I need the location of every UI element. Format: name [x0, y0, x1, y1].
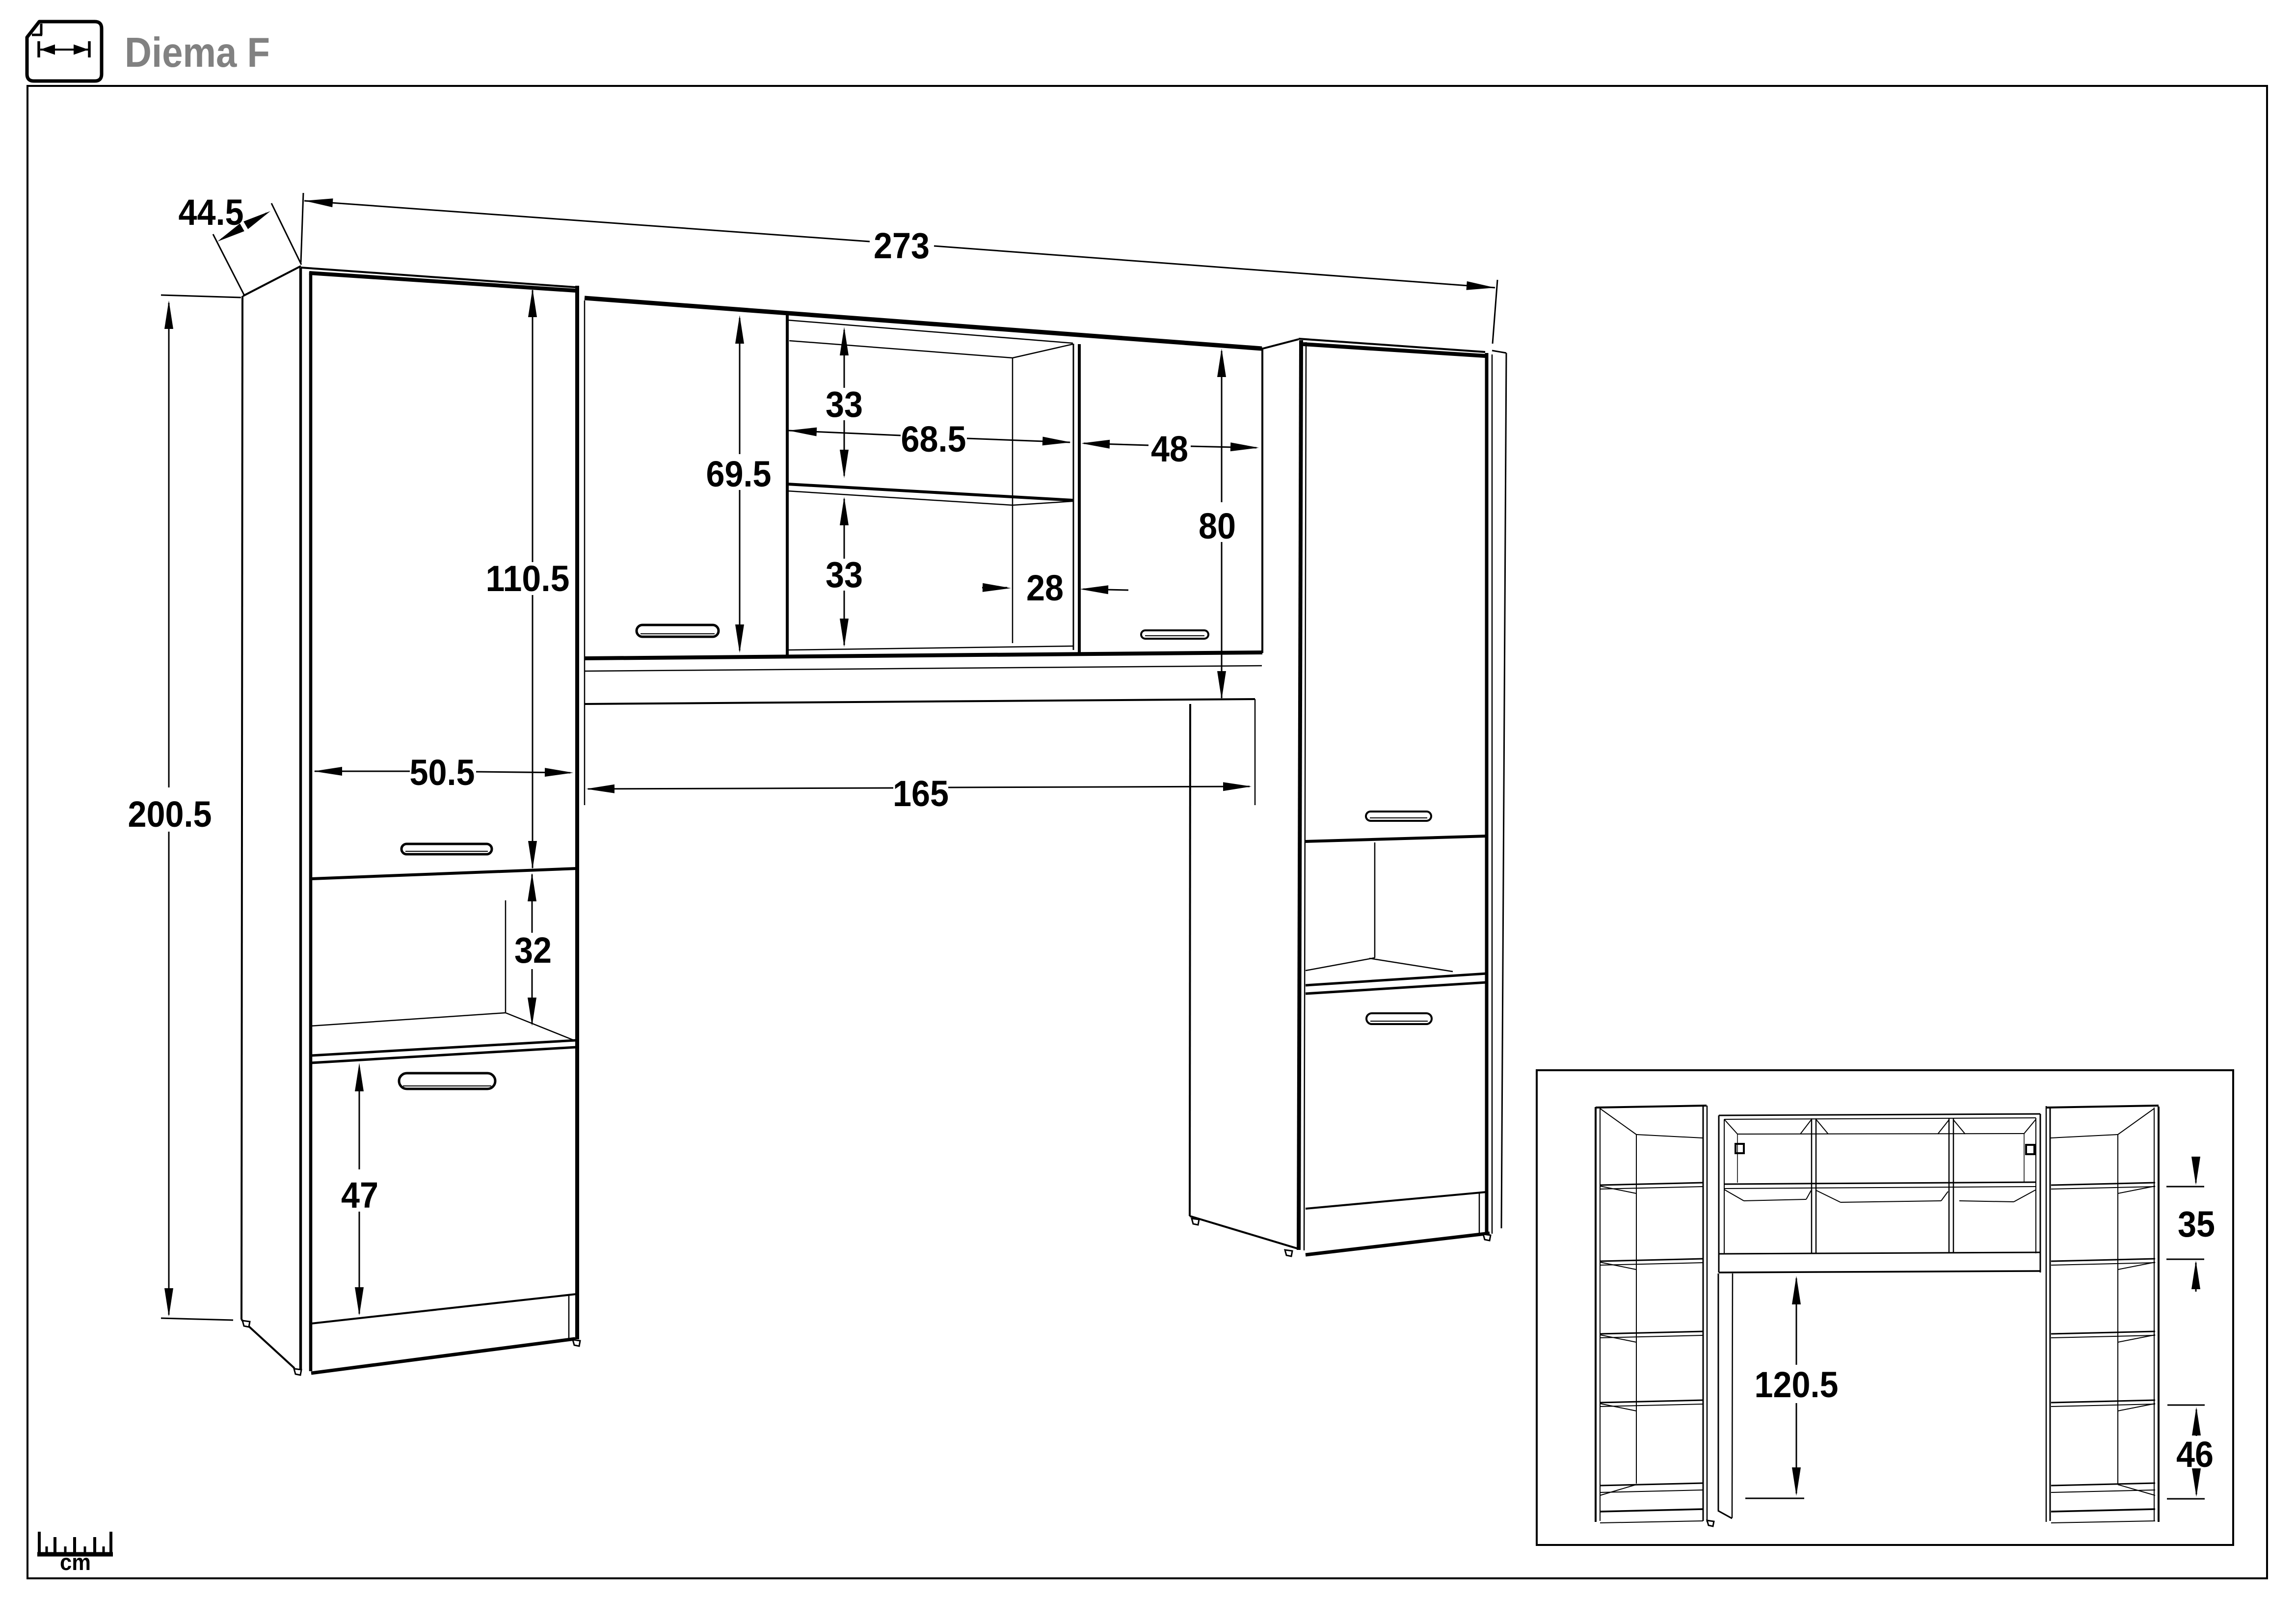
svg-text:48: 48 — [1151, 429, 1188, 469]
svg-text:120.5: 120.5 — [1755, 1364, 1839, 1405]
svg-text:80: 80 — [1199, 506, 1236, 546]
svg-text:68.5: 68.5 — [901, 419, 966, 460]
svg-text:46: 46 — [2176, 1434, 2214, 1475]
svg-text:47: 47 — [341, 1175, 378, 1216]
svg-text:32: 32 — [514, 930, 552, 971]
svg-text:165: 165 — [893, 773, 949, 814]
svg-text:50.5: 50.5 — [410, 752, 475, 793]
svg-text:200.5: 200.5 — [128, 794, 212, 835]
svg-text:cm: cm — [60, 1549, 91, 1575]
svg-text:28: 28 — [1026, 568, 1064, 608]
svg-text:Diema F: Diema F — [125, 29, 270, 76]
svg-text:110.5: 110.5 — [486, 558, 570, 599]
svg-text:35: 35 — [2178, 1204, 2215, 1245]
svg-text:69.5: 69.5 — [706, 454, 772, 494]
svg-text:44.5: 44.5 — [179, 192, 244, 233]
svg-text:33: 33 — [826, 554, 863, 595]
svg-text:273: 273 — [874, 225, 930, 266]
svg-text:33: 33 — [826, 384, 863, 425]
